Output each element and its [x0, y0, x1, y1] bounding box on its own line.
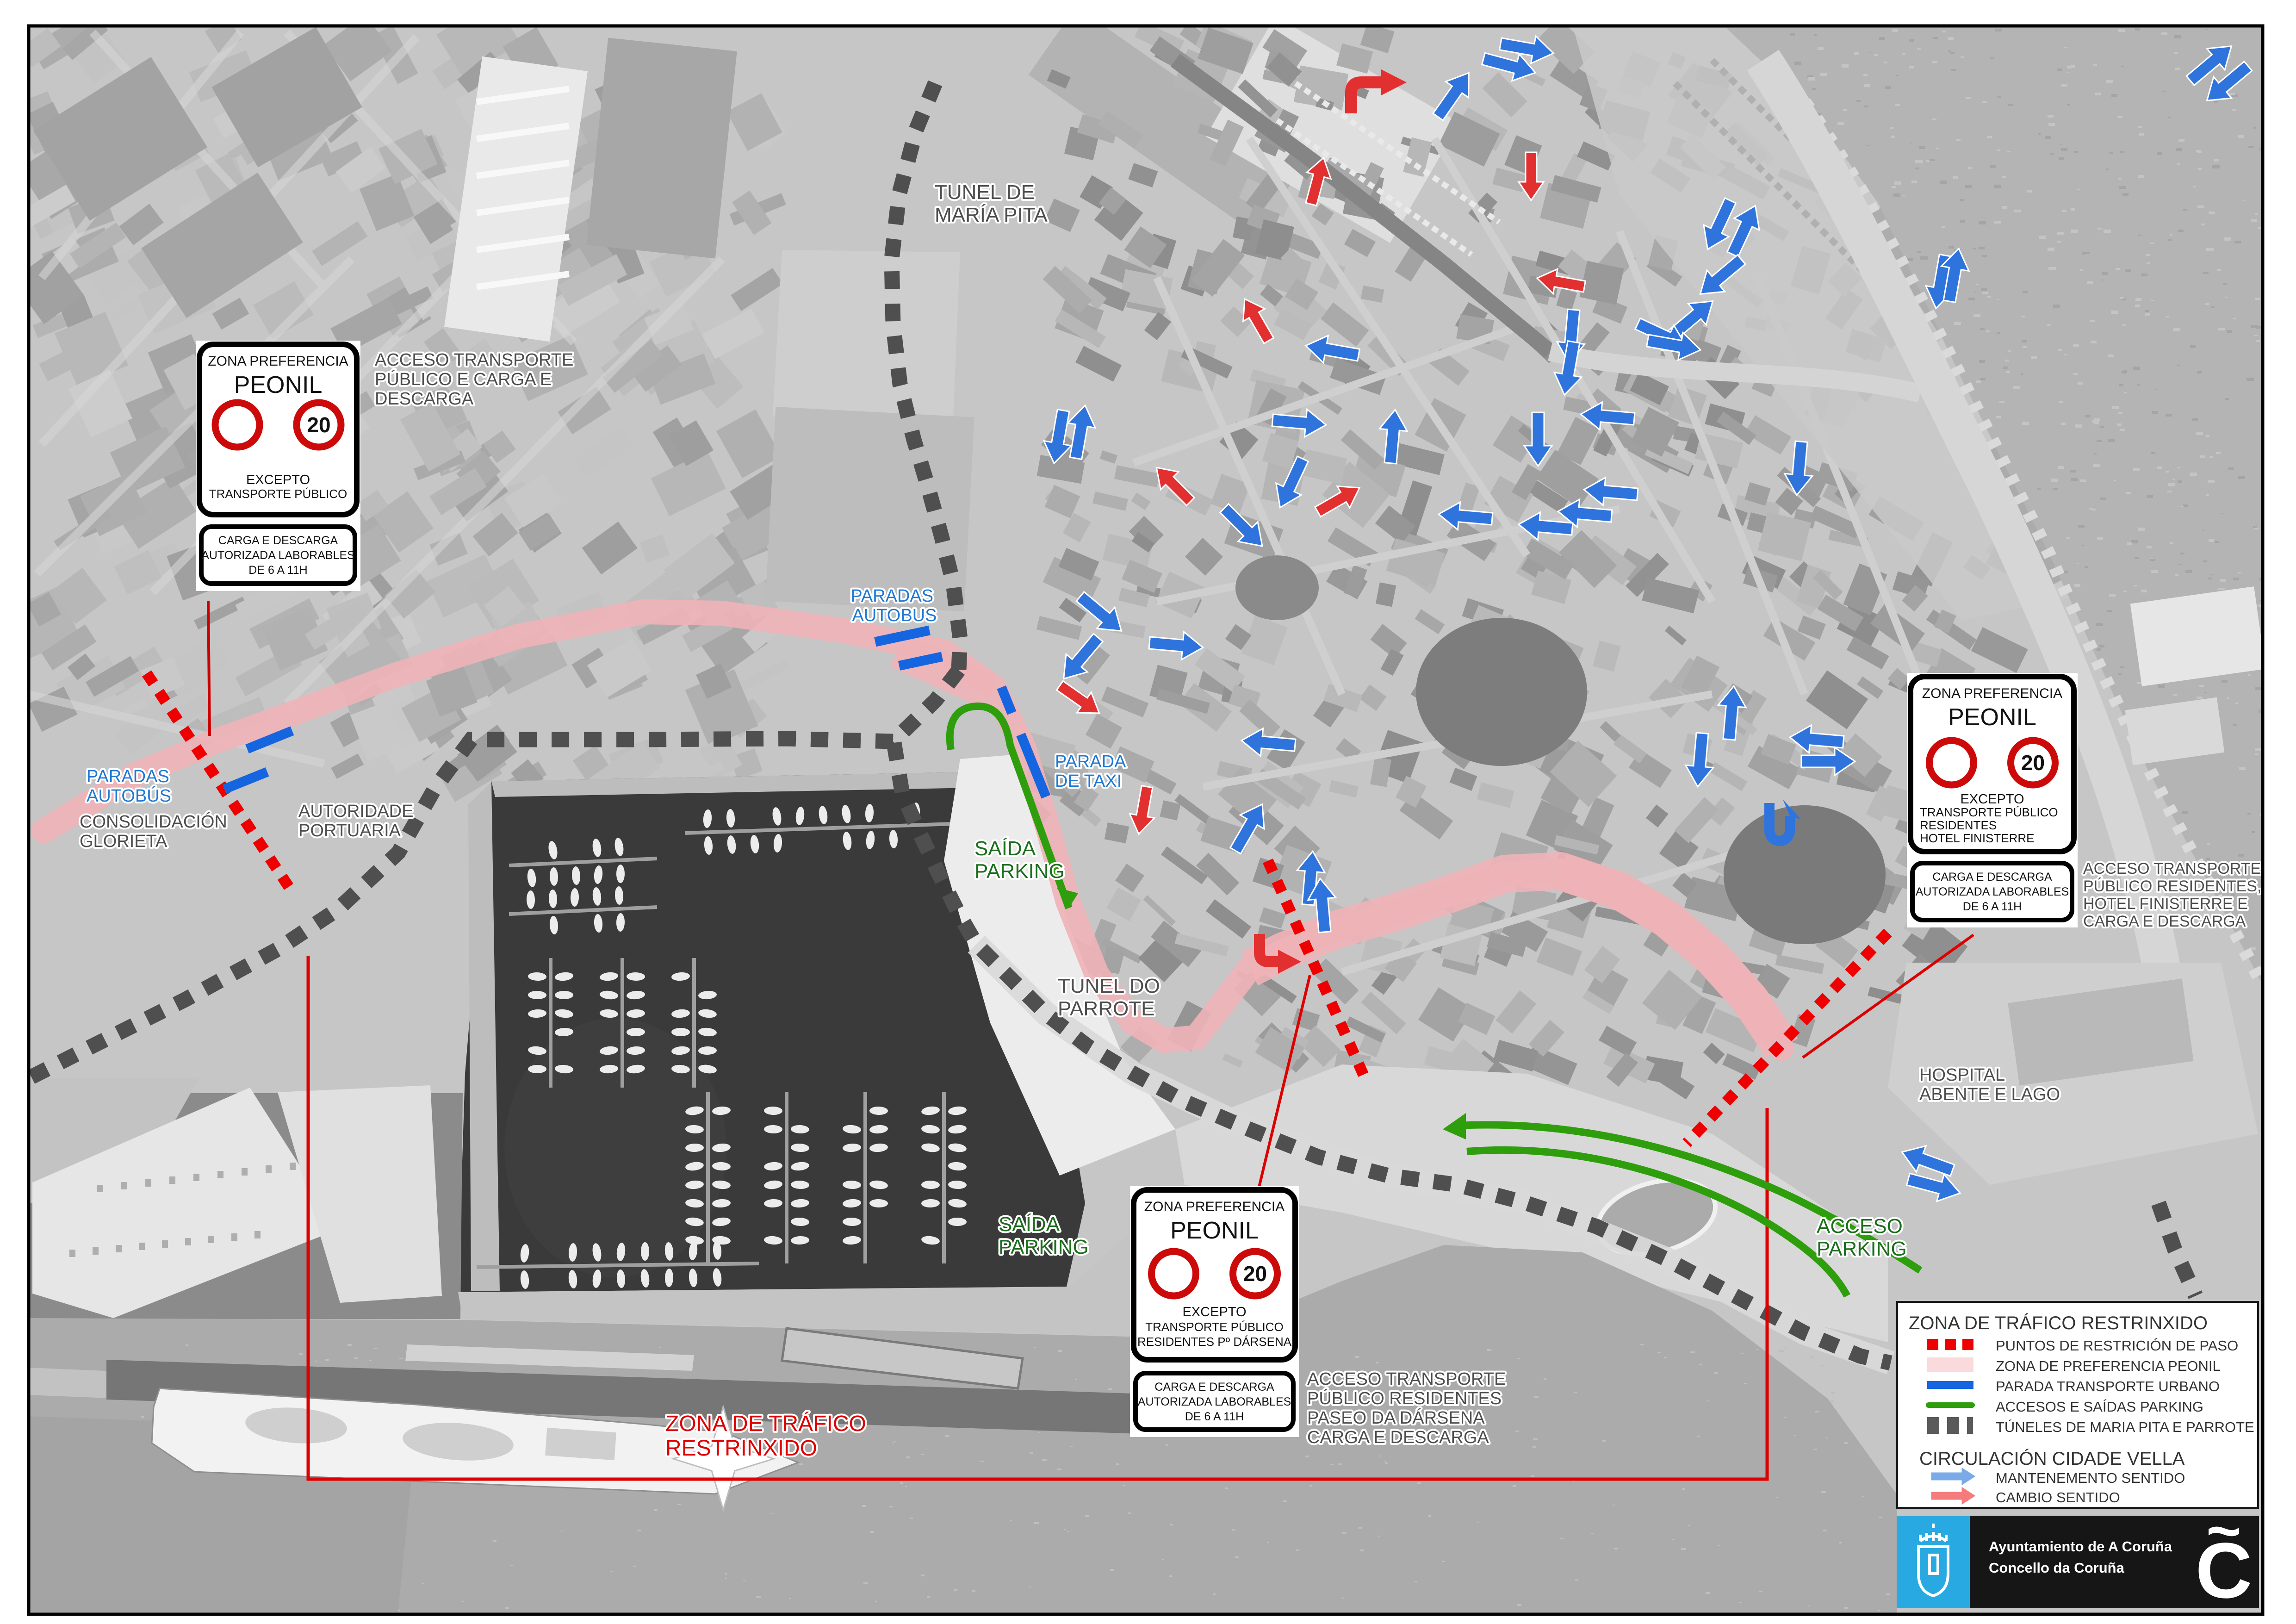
svg-text:TUNEL DE MARÍA PITA: TUNEL DE MARÍA PITA [935, 181, 1048, 226]
svg-text:AUTORIZADA LABORABLES: AUTORIZADA LABORABLES [1138, 1395, 1291, 1408]
svg-text:DE 6 A 11H: DE 6 A 11H [1185, 1410, 1244, 1423]
svg-text:MANTENEMENTO SENTIDO: MANTENEMENTO SENTIDO [1996, 1470, 2185, 1486]
svg-text:PARADAS AUTOBÚS: PARADAS AUTOBÚS [87, 767, 174, 806]
svg-text:CARGA E DESCARGA: CARGA E DESCARGA [1154, 1381, 1274, 1394]
svg-text:CAMBIO SENTIDO: CAMBIO SENTIDO [1996, 1489, 2120, 1506]
svg-text:PARADA TRANSPORTE URBANO: PARADA TRANSPORTE URBANO [1996, 1378, 2220, 1394]
svg-text:PUNTOS DE RESTRICIÓN DE PASO: PUNTOS DE RESTRICIÓN DE PASO [1996, 1338, 2238, 1354]
svg-text:CARGA E DESCARGA: CARGA E DESCARGA [218, 534, 338, 547]
svg-text:EXCEPTO: EXCEPTO [1960, 792, 2024, 807]
svg-text:CARGA E DESCARGA: CARGA E DESCARGA [1932, 871, 2052, 884]
svg-text:PEONIL: PEONIL [234, 372, 323, 398]
svg-text:RESIDENTES Pº DÁRSENA: RESIDENTES Pº DÁRSENA [1137, 1335, 1292, 1349]
svg-text:TUNEL DO PARROTE: TUNEL DO PARROTE [1058, 975, 1166, 1020]
svg-text:PARADAS AUTOBUS: PARADAS AUTOBUS [850, 586, 938, 625]
svg-text:ZONA PREFERENCIA: ZONA PREFERENCIA [1922, 686, 2062, 701]
svg-text:ZONA PREFERENCIA: ZONA PREFERENCIA [1144, 1199, 1285, 1214]
svg-text:HOTEL FINISTERRE: HOTEL FINISTERRE [1920, 831, 2035, 845]
svg-text:EXCEPTO: EXCEPTO [1182, 1305, 1246, 1319]
svg-text:TRANSPORTE PÚBLICO: TRANSPORTE PÚBLICO [209, 487, 348, 501]
svg-text:EXCEPTO: EXCEPTO [246, 473, 310, 487]
svg-text:AUTORIDADE PORTUARIA: AUTORIDADE PORTUARIA [298, 802, 418, 840]
svg-text:ACCESO PARKING: ACCESO PARKING [1817, 1215, 1908, 1260]
svg-text:TRANSPORTE PÚBLICO: TRANSPORTE PÚBLICO [1920, 805, 2058, 819]
svg-text:AUTORIZADA LABORABLES: AUTORIZADA LABORABLES [201, 549, 355, 562]
svg-text:ACCESO TRANSPORTE PÚBLICO RESI: ACCESO TRANSPORTE PÚBLICO RESIDENTES, HO… [2083, 860, 2266, 930]
svg-text:PARADA DE TAXI: PARADA DE TAXI [1055, 752, 1130, 791]
svg-text:DE 6 A 11H: DE 6 A 11H [248, 564, 307, 577]
svg-text:20: 20 [307, 413, 330, 437]
svg-text:Concello da Coruña: Concello da Coruña [1989, 1560, 2125, 1576]
svg-text:ZONA PREFERENCIA: ZONA PREFERENCIA [208, 354, 348, 369]
svg-text:ZONA DE PREFERENCIA PEONIL: ZONA DE PREFERENCIA PEONIL [1996, 1358, 2221, 1374]
svg-text:DE 6 A 11H: DE 6 A 11H [1963, 900, 2022, 913]
svg-text:20: 20 [2021, 751, 2045, 775]
svg-text:TRANSPORTE PÚBLICO: TRANSPORTE PÚBLICO [1145, 1320, 1284, 1334]
svg-text:ACCESOS E SAÍDAS PARKING: ACCESOS E SAÍDAS PARKING [1996, 1399, 2203, 1415]
svg-text:AUTORIZADA LABORABLES: AUTORIZADA LABORABLES [1916, 885, 2069, 898]
svg-text:PEONIL: PEONIL [1948, 704, 2036, 731]
svg-text:TÚNELES DE MARIA PITA E PARRO: TÚNELES DE MARIA PITA E PARROTE [1996, 1419, 2254, 1435]
svg-text:PEONIL: PEONIL [1170, 1217, 1259, 1244]
svg-text:~: ~ [2206, 1497, 2241, 1564]
svg-text:RESIDENTES: RESIDENTES [1920, 818, 1997, 832]
svg-text:CIRCULACIÓN CIDADE VELLA: CIRCULACIÓN CIDADE VELLA [1919, 1448, 2185, 1469]
svg-text:ZONA DE TRÁFICO RESTRINXIDO: ZONA DE TRÁFICO RESTRINXIDO [1909, 1313, 2208, 1333]
svg-text:20: 20 [1243, 1262, 1267, 1286]
svg-text:ACCESO TRANSPORTE PÚBLICO RESI: ACCESO TRANSPORTE PÚBLICO RESIDENTES PAS… [1307, 1369, 1511, 1447]
svg-text:Ayuntamiento de A Coruña: Ayuntamiento de A Coruña [1989, 1538, 2172, 1555]
